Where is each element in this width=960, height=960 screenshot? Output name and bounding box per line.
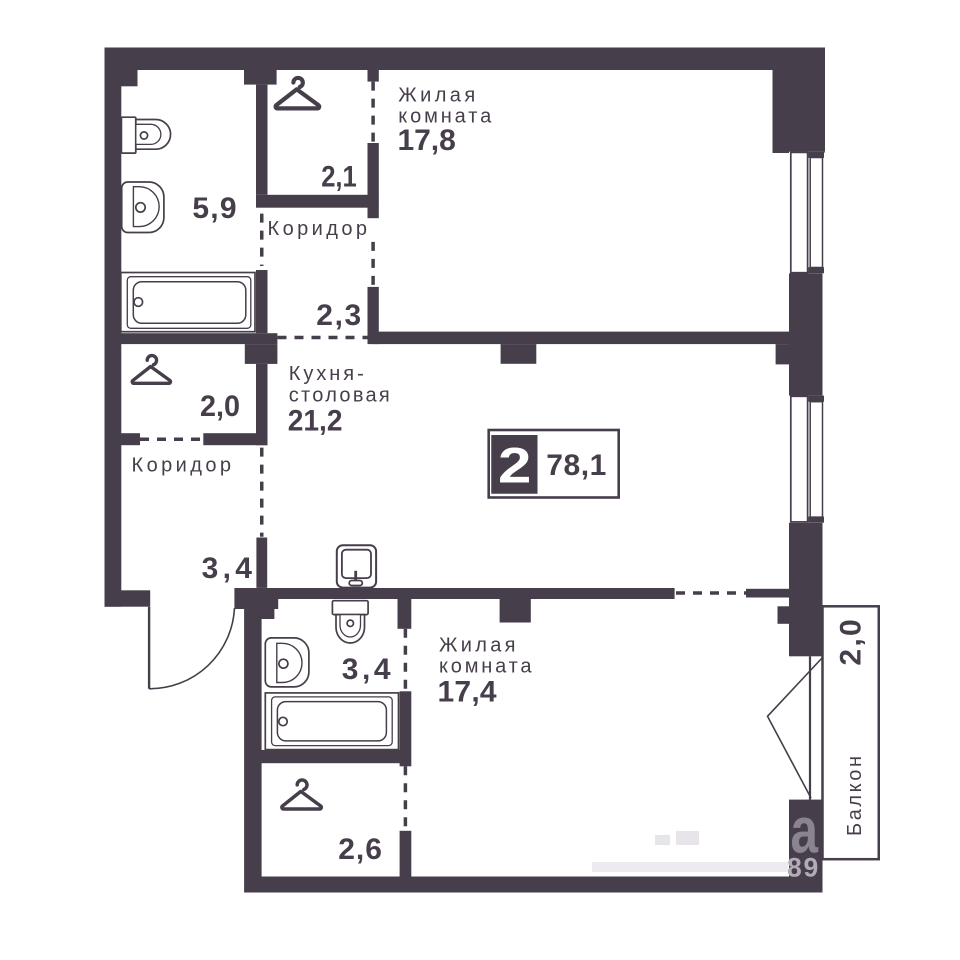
- svg-text:Жилая: Жилая: [439, 635, 516, 657]
- svg-text:Балкон: Балкон: [844, 756, 866, 836]
- svg-text:Жилая: Жилая: [398, 84, 475, 106]
- svg-text:17,4: 17,4: [438, 676, 497, 709]
- svg-text:2,6: 2,6: [338, 833, 382, 866]
- svg-text:2,1: 2,1: [321, 160, 357, 193]
- svg-text:2,0: 2,0: [200, 390, 240, 423]
- svg-text:Коридор: Коридор: [268, 218, 368, 240]
- svg-text:3,4: 3,4: [202, 552, 253, 585]
- svg-text:Кухня-: Кухня-: [289, 363, 364, 385]
- svg-text:3,4: 3,4: [342, 653, 391, 686]
- svg-text:2,3: 2,3: [316, 299, 361, 332]
- svg-text:столовая: столовая: [289, 384, 390, 406]
- svg-text:78,1: 78,1: [546, 449, 606, 482]
- svg-text:89: 89: [787, 852, 818, 882]
- svg-text:21,2: 21,2: [288, 404, 343, 437]
- svg-text:2: 2: [498, 437, 531, 493]
- svg-text:2,0: 2,0: [835, 619, 868, 665]
- svg-text:комната: комната: [439, 656, 532, 678]
- svg-text:Коридор: Коридор: [132, 454, 232, 476]
- svg-text:5,9: 5,9: [192, 192, 236, 225]
- svg-text:17,8: 17,8: [398, 124, 456, 157]
